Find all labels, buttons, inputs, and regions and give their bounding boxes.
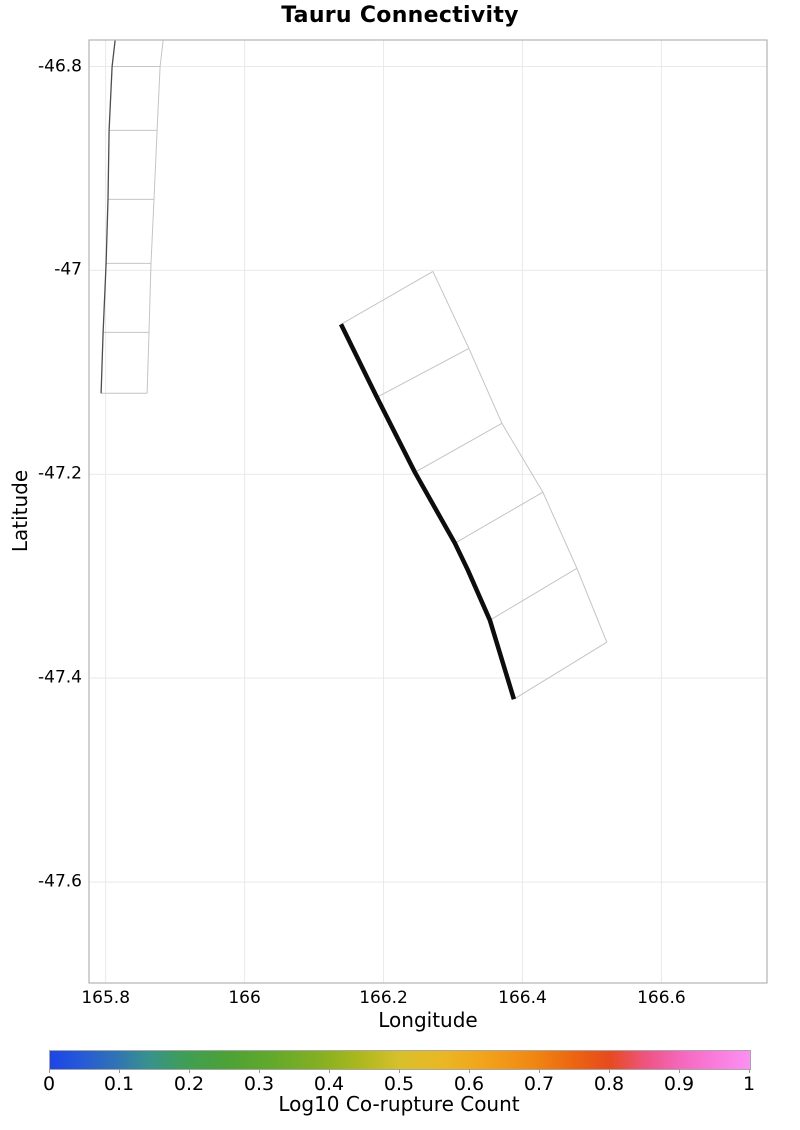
colorbar-tick-label: 0.5 (384, 1075, 414, 1094)
tauru-fault-outline-segment (514, 642, 607, 699)
northwest-neighbor-fault-outline-segment (147, 41, 163, 394)
colorbar-tick-label: 0 (43, 1075, 55, 1094)
tauru-fault-trace (341, 324, 514, 699)
tauru-fault-outline-segment (433, 271, 607, 642)
colorbar-tick-label: 0.2 (174, 1075, 204, 1094)
tauru-fault-outline-segment (377, 348, 469, 397)
x-tick-label: 166 (228, 990, 260, 1007)
colorbar-tick-label: 1 (743, 1075, 755, 1094)
colorbar-tick-label: 0.8 (594, 1075, 624, 1094)
colorbar-tick-label: 0.1 (104, 1075, 134, 1094)
colorbar-title: Log10 Co-rupture Count (49, 1092, 749, 1116)
x-tick-label: 166.6 (637, 990, 686, 1007)
y-tick-label: -47 (54, 262, 82, 279)
colorbar (49, 1050, 751, 1070)
tauru-fault-outline-segment (341, 271, 433, 324)
y-tick-label: -46.8 (38, 58, 82, 75)
x-tick-label: 166.4 (498, 990, 547, 1007)
x-axis-title: Longitude (89, 1008, 767, 1032)
northwest-neighbor-fault-trace (101, 41, 115, 394)
colorbar-tick-label: 0.6 (454, 1075, 484, 1094)
x-tick-label: 165.8 (81, 990, 130, 1007)
y-axis-title: Latitude (8, 470, 32, 552)
colorbar-tick-label: 0.9 (664, 1075, 694, 1094)
colorbar-tick-label: 0.4 (314, 1075, 344, 1094)
y-tick-label: -47.2 (38, 466, 82, 483)
tauru-fault-outline-segment (490, 568, 577, 620)
colorbar-tick-label: 0.7 (524, 1075, 554, 1094)
tauru-fault-outline-segment (455, 492, 543, 543)
y-tick-label: -47.4 (38, 670, 82, 687)
x-tick-label: 166.2 (359, 990, 408, 1007)
plot-border (89, 40, 767, 983)
map-plot-area (0, 0, 800, 1130)
y-tick-label: -47.6 (38, 874, 82, 891)
colorbar-gradient (50, 1051, 750, 1069)
colorbar-tick-label: 0.3 (244, 1075, 274, 1094)
tauru-fault-outline-segment (415, 423, 502, 472)
figure-canvas: Tauru Connectivity Longitude Latitude Lo… (0, 0, 800, 1130)
